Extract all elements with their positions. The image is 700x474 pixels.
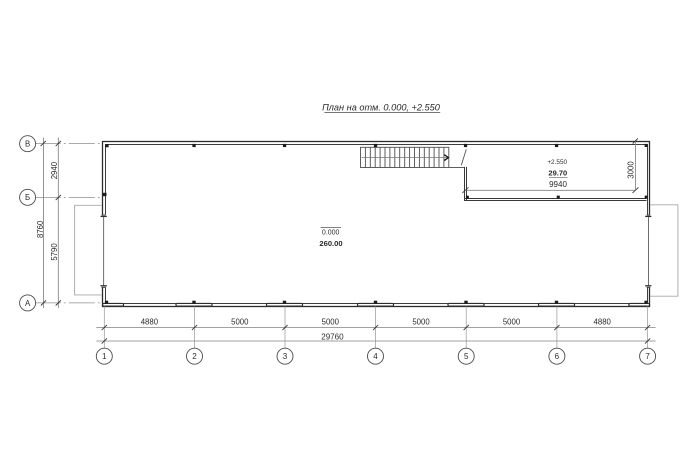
svg-text:6: 6 — [555, 352, 560, 361]
svg-text:1: 1 — [102, 352, 107, 361]
svg-text:0.000: 0.000 — [322, 230, 340, 237]
svg-text:Б: Б — [25, 193, 30, 202]
svg-text:29.70: 29.70 — [548, 169, 567, 178]
svg-text:5000: 5000 — [412, 317, 430, 326]
svg-text:5790: 5790 — [50, 243, 59, 261]
svg-text:5000: 5000 — [231, 317, 249, 326]
svg-text:2: 2 — [192, 352, 197, 361]
svg-text:7: 7 — [645, 352, 650, 361]
svg-text:А: А — [25, 299, 31, 308]
svg-text:4880: 4880 — [141, 317, 159, 326]
svg-text:260.00: 260.00 — [319, 239, 342, 248]
svg-text:5000: 5000 — [322, 317, 340, 326]
svg-text:2940: 2940 — [50, 161, 59, 179]
svg-text:5000: 5000 — [503, 317, 521, 326]
svg-text:9940: 9940 — [549, 180, 567, 189]
svg-text:3000: 3000 — [627, 161, 636, 179]
svg-text:29760: 29760 — [321, 332, 344, 341]
svg-text:План на отм. 0.000, +2.550: План на отм. 0.000, +2.550 — [322, 103, 441, 113]
svg-text:3: 3 — [283, 352, 288, 361]
svg-text:В: В — [25, 140, 30, 149]
svg-text:5: 5 — [464, 352, 469, 361]
svg-text:4: 4 — [373, 352, 378, 361]
svg-text:+2.550: +2.550 — [547, 159, 567, 166]
svg-text:8760: 8760 — [36, 220, 45, 238]
svg-text:4880: 4880 — [594, 317, 612, 326]
